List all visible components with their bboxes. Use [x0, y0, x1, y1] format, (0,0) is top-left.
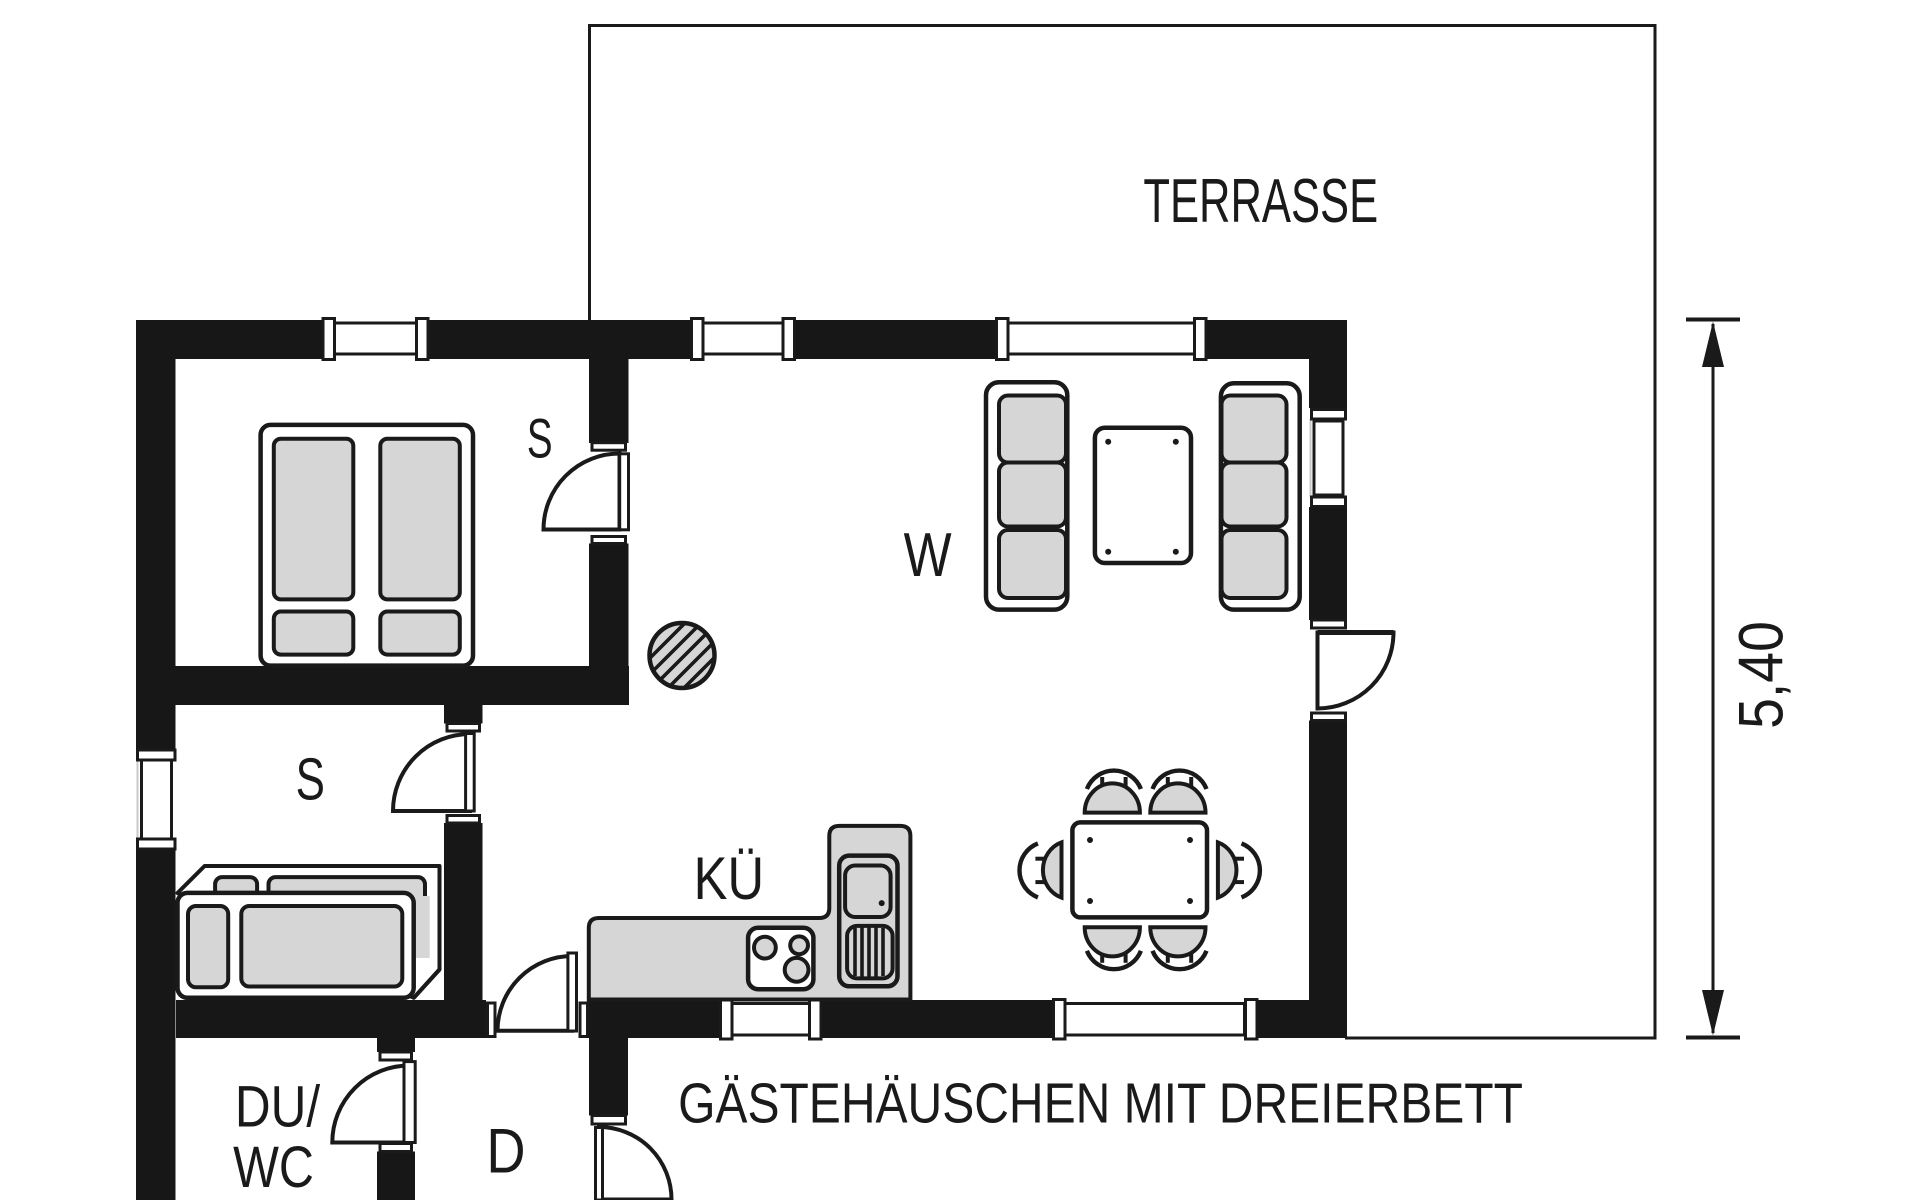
svg-text:5,40: 5,40: [1725, 621, 1796, 729]
svg-text:DU/: DU/: [235, 1075, 320, 1140]
svg-text:W: W: [904, 521, 952, 590]
svg-text:GÄSTEHÄUSCHEN MIT DREIERBETT: GÄSTEHÄUSCHEN MIT DREIERBETT: [678, 1073, 1523, 1135]
svg-text:WC: WC: [233, 1136, 314, 1200]
svg-text:KÜ: KÜ: [694, 844, 764, 912]
svg-text:TERRASSE: TERRASSE: [1143, 168, 1378, 236]
svg-text:S: S: [527, 409, 553, 471]
svg-text:S: S: [296, 747, 325, 813]
svg-text:D: D: [486, 1117, 525, 1187]
